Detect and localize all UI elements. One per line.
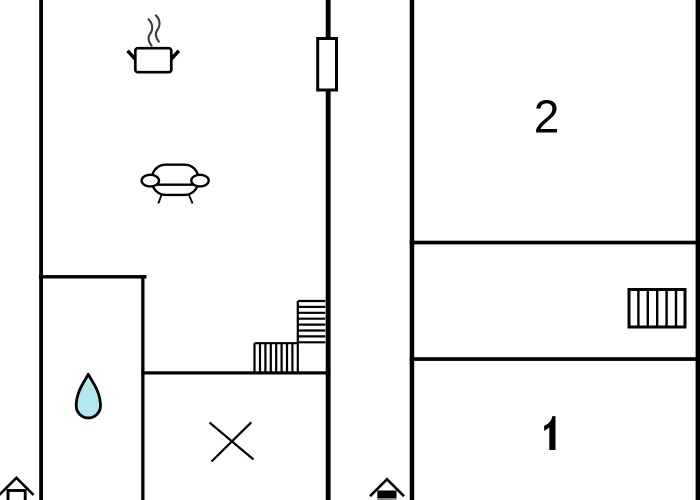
- svg-text:2: 2: [534, 91, 560, 143]
